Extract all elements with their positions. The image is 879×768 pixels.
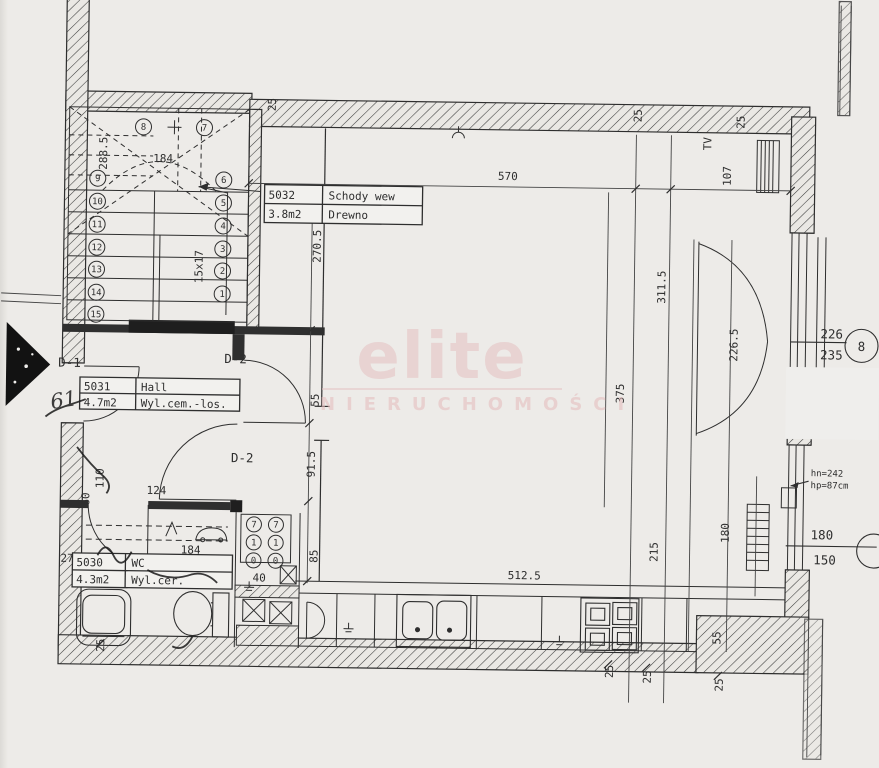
dim: 25 xyxy=(603,665,616,678)
stair-step-number: 9 xyxy=(95,174,101,184)
dim: 25 xyxy=(735,115,748,128)
stair-step-number: 2 xyxy=(220,267,226,277)
stair-step-number: 11 xyxy=(92,220,103,230)
sill-note-top: hn=242 xyxy=(811,469,844,479)
dim: 375 xyxy=(614,383,627,403)
dim: 180 xyxy=(719,523,732,543)
sill-note-bottom: hp=87cm xyxy=(810,481,848,492)
dim: 25 xyxy=(632,109,645,122)
window-tag-kitchen: hn=242 hp=87cm 180 150 xyxy=(785,469,879,568)
toilet-tank xyxy=(212,593,229,637)
room-name: Hall xyxy=(141,381,168,394)
stair-step-number: 5 xyxy=(221,199,227,209)
dim: 85 xyxy=(307,550,320,563)
meter-mark: 7 xyxy=(273,521,279,531)
meter-mark: 7 xyxy=(251,520,257,530)
radiator xyxy=(746,140,779,570)
room-label-stairs: 5032 Schody wew 3.8m2 Drewno xyxy=(264,185,423,225)
stair-note: 15x17 xyxy=(192,250,205,283)
dim: 184 xyxy=(181,543,201,556)
room-label-wc: 5030 WC 4.3m2 Wyl.cer. xyxy=(72,553,232,589)
dim: 25 xyxy=(94,639,107,652)
room-area: 3.8m2 xyxy=(268,208,301,221)
stair-step-number: 6 xyxy=(221,176,227,186)
dim: 55 xyxy=(710,631,723,644)
dim: 311.5 xyxy=(655,270,668,303)
window-width: 180 xyxy=(810,527,833,542)
dim: 512.5 xyxy=(508,569,541,582)
hall-wardrobe xyxy=(86,521,228,542)
dim: 124 xyxy=(146,484,166,497)
dim: 184 xyxy=(153,152,173,165)
window-height: 150 xyxy=(813,552,836,567)
ceiling-light-symbol xyxy=(452,132,464,138)
room-name: Schody wew xyxy=(328,189,395,203)
room-id: 5031 xyxy=(84,380,111,393)
ground-symbol xyxy=(343,623,353,632)
dim: 288.5 xyxy=(97,137,110,170)
installation-shaft: 7 7 1 1 0 0 xyxy=(234,512,300,648)
tv-label: TV xyxy=(701,137,714,151)
window-number: 8 xyxy=(858,339,866,354)
stair-step-number: 13 xyxy=(91,265,102,275)
handwritten-number: 61 xyxy=(49,386,79,414)
floorplan-drawing: 1 2 3 4 5 6 7 8 9 10 11 12 13 14 15 xyxy=(0,0,879,768)
dim: 40 xyxy=(253,571,266,584)
dim: 270.5 xyxy=(311,230,324,263)
stair-step-number: 8 xyxy=(141,123,147,133)
meter-mark: 1 xyxy=(251,538,257,548)
stair-step-number: 4 xyxy=(220,222,226,232)
room-finish: Wyl.cem.-los. xyxy=(141,397,227,411)
dim: 215 xyxy=(647,542,660,562)
scan-white-patch xyxy=(785,367,879,440)
toilet-bowl xyxy=(173,591,212,636)
meter-mark: 0 xyxy=(273,557,279,567)
door-tag-d2-lower: D-2 xyxy=(231,450,254,465)
room-label-hall: 5031 Hall 4.7m2 Wyl.cem.-los. xyxy=(80,377,240,411)
room-name: WC xyxy=(131,557,144,570)
dim: 226.5 xyxy=(727,328,740,361)
dim: 25 xyxy=(713,678,726,691)
dim: 25 xyxy=(641,670,654,683)
dim: 60 xyxy=(79,492,92,505)
room-id: 5032 xyxy=(268,189,295,202)
dim: 55 xyxy=(309,394,322,407)
counter-round-end xyxy=(306,602,325,638)
room-finish: Wyl.cer. xyxy=(131,574,184,588)
dim: 27 xyxy=(60,552,73,565)
window-width: 226 xyxy=(820,326,843,341)
dim: 91.5 xyxy=(305,451,318,478)
stair-step-number: 12 xyxy=(91,243,102,253)
door-tag-d2-upper: D-2 xyxy=(224,351,247,366)
dim: 25 xyxy=(266,98,279,111)
stair-step-number: 3 xyxy=(220,245,226,255)
window-height: 235 xyxy=(820,347,843,362)
stair-step-number: 1 xyxy=(219,290,225,300)
window-tag-balcony: 226 235 8 xyxy=(790,326,878,363)
stair-step-number: 15 xyxy=(90,310,101,320)
dim: 570 xyxy=(498,170,518,183)
floorplan-scan-page: 1 2 3 4 5 6 7 8 9 10 11 12 13 14 15 xyxy=(0,0,879,768)
entrance-arrow-icon xyxy=(6,322,51,407)
meter-mark: 0 xyxy=(251,556,257,566)
room-area: 4.7m2 xyxy=(84,396,117,409)
stair-step-number: 7 xyxy=(202,124,208,134)
room-area: 4.3m2 xyxy=(76,573,109,586)
dim: 107 xyxy=(721,166,734,186)
stair-step-number: 10 xyxy=(92,197,103,207)
meter-mark: 1 xyxy=(273,539,279,549)
door-tag-d1: D-1 xyxy=(58,355,81,370)
room-id: 5030 xyxy=(76,556,103,569)
kitchen-window xyxy=(780,445,811,570)
stair-step-number: 14 xyxy=(91,288,102,298)
room-finish: Drewno xyxy=(328,208,368,222)
